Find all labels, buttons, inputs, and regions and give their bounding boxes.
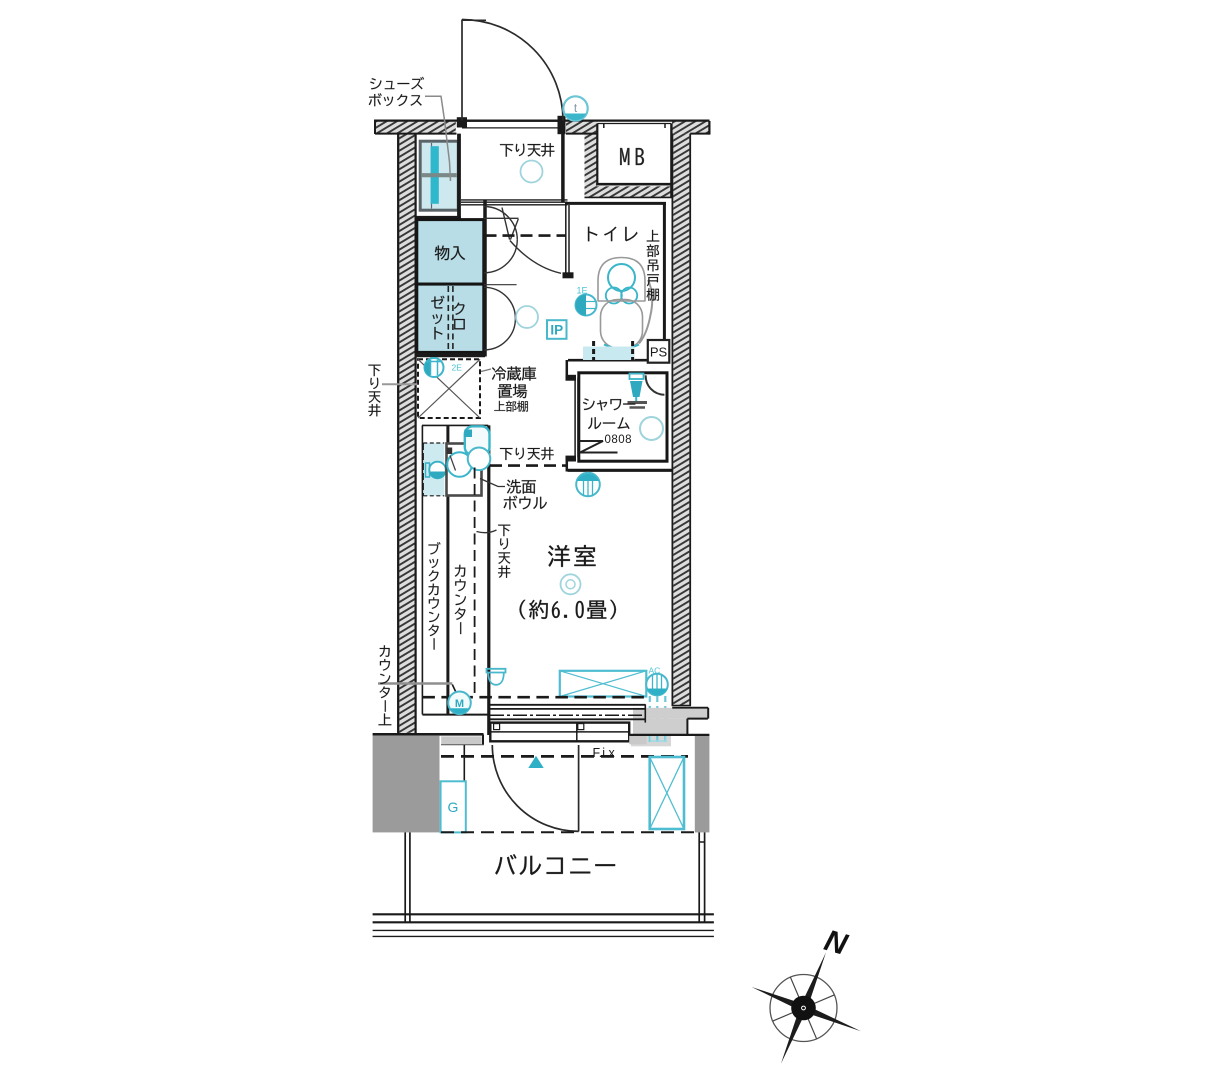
svg-text:PS: PS xyxy=(650,345,668,360)
svg-text:G: G xyxy=(448,799,459,815)
svg-text:1E: 1E xyxy=(577,286,588,296)
svg-text:0808: 0808 xyxy=(605,434,633,446)
svg-text:M: M xyxy=(455,698,464,710)
svg-text:2E: 2E xyxy=(452,363,463,373)
svg-text:IP: IP xyxy=(550,322,563,337)
svg-text:F.i.x: F.i.x xyxy=(593,746,616,760)
